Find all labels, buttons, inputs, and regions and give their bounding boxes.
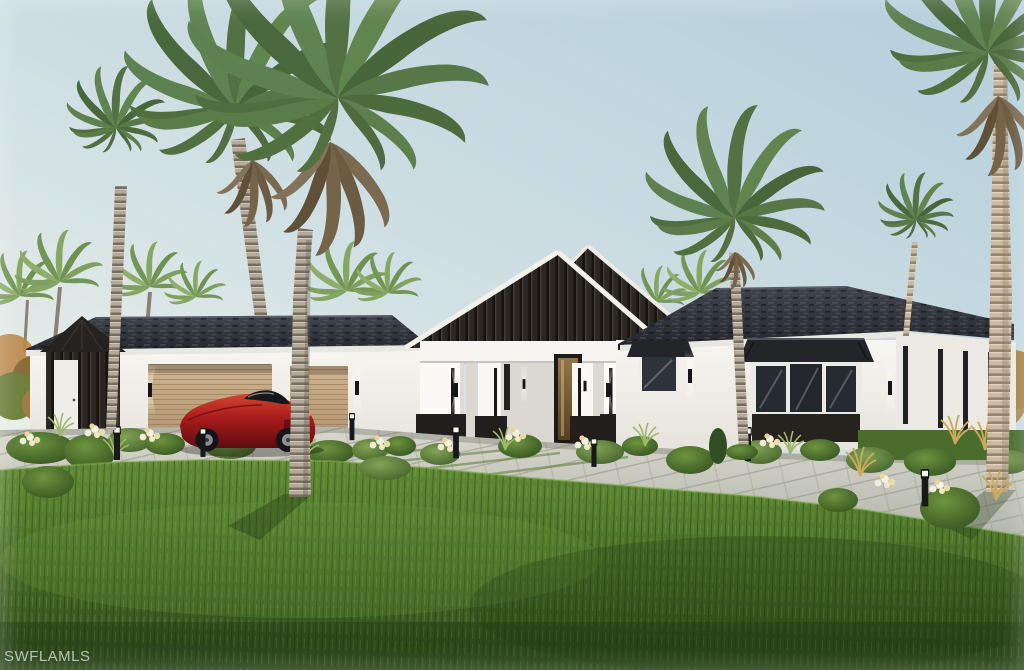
bay-window bbox=[738, 338, 874, 442]
real-estate-photo: SWFLAMLS bbox=[0, 0, 1024, 670]
path-light bbox=[452, 426, 459, 458]
path-light bbox=[921, 469, 929, 506]
rendering-canvas bbox=[0, 0, 1024, 670]
path-light bbox=[113, 426, 121, 460]
path-light bbox=[591, 438, 597, 467]
path-light bbox=[349, 413, 355, 440]
path-light bbox=[200, 428, 206, 457]
window-awning bbox=[627, 341, 694, 357]
bay-awning bbox=[738, 338, 874, 362]
watermark: SWFLAMLS bbox=[4, 648, 91, 665]
entablature bbox=[420, 341, 650, 363]
